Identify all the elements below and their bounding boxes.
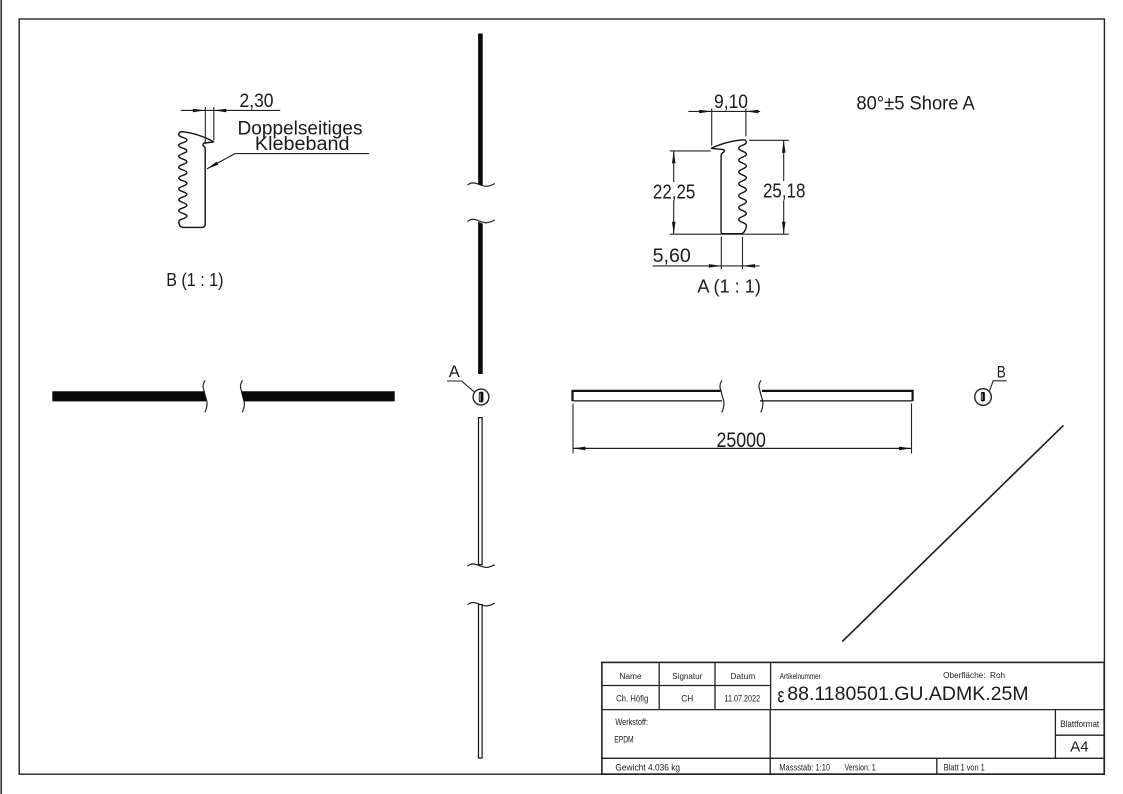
svg-text:Artikelnummer: Artikelnummer [780, 671, 821, 681]
svg-text:A (1 : 1): A (1 : 1) [697, 276, 761, 297]
svg-text:22,25: 22,25 [653, 180, 695, 203]
svg-text:Name: Name [619, 671, 641, 681]
svg-text:Werkstoff:: Werkstoff: [615, 717, 648, 727]
svg-text:B: B [997, 363, 1006, 382]
svg-text:A: A [449, 362, 461, 381]
svg-text:ε: ε [778, 685, 785, 708]
svg-text:Oberfläche: Roh: Oberfläche: Roh [943, 670, 1005, 680]
svg-text:Massstab: 1:10: Massstab: 1:10 [779, 763, 830, 773]
svg-text:Version: 1: Version: 1 [845, 763, 876, 773]
svg-text:80°±5 Shore A: 80°±5 Shore A [856, 94, 975, 115]
svg-text:25000: 25000 [716, 429, 766, 452]
svg-text:2,30: 2,30 [240, 90, 274, 112]
svg-text:B (1 : 1): B (1 : 1) [166, 269, 223, 290]
svg-text:Ch. Höfig: Ch. Höfig [616, 694, 648, 704]
svg-text:Klebeband: Klebeband [255, 134, 350, 155]
svg-text:EPDM: EPDM [614, 735, 634, 745]
svg-text:Blattformat: Blattformat [1060, 719, 1099, 729]
svg-text:5,60: 5,60 [653, 245, 691, 267]
svg-text:Datum: Datum [730, 671, 755, 681]
svg-text:A4: A4 [1070, 738, 1088, 755]
svg-text:Signatur: Signatur [672, 671, 702, 681]
svg-text:9,10: 9,10 [714, 91, 748, 113]
svg-text:11.07.2022: 11.07.2022 [725, 694, 761, 704]
svg-text:25,18: 25,18 [763, 180, 805, 203]
svg-text:CH: CH [681, 694, 693, 704]
svg-text:Gewicht 4.036 kg: Gewicht 4.036 kg [615, 763, 680, 773]
svg-text:Blatt 1 von 1: Blatt 1 von 1 [944, 763, 985, 773]
svg-text:88.1180501.GU.ADMK.25M: 88.1180501.GU.ADMK.25M [787, 683, 1028, 705]
